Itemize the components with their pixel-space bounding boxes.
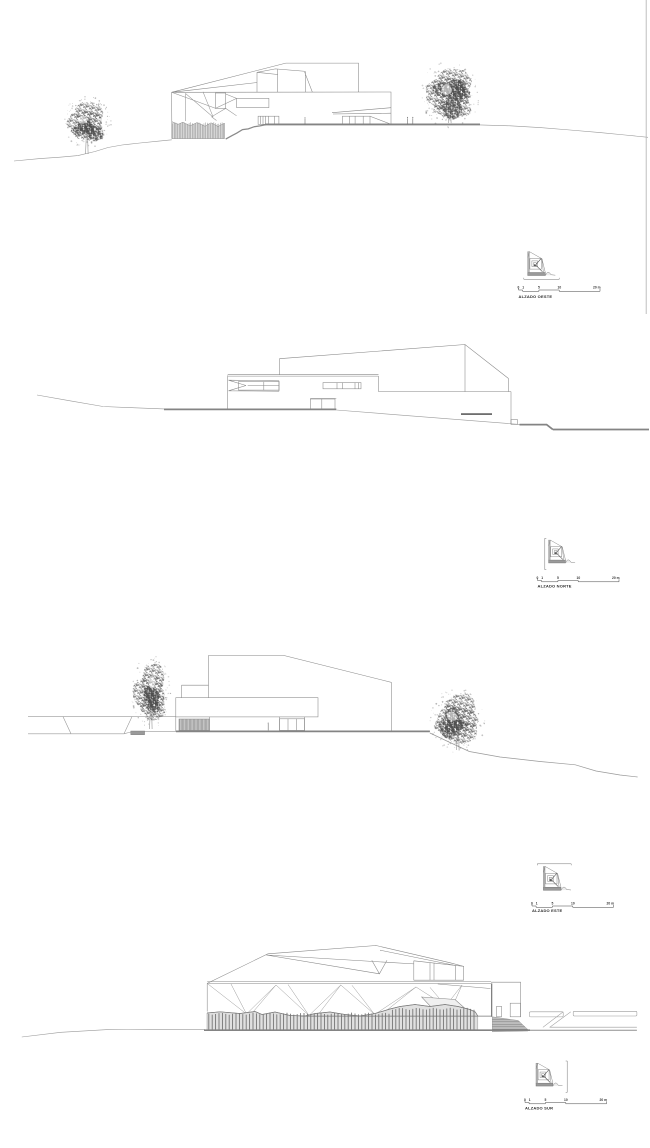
- svg-text:5: 5: [545, 1098, 547, 1102]
- svg-text:1: 1: [529, 1098, 531, 1102]
- svg-text:0: 0: [531, 901, 533, 905]
- svg-text:0: 0: [524, 1098, 526, 1102]
- svg-text:ALZADO OESTE: ALZADO OESTE: [519, 294, 553, 299]
- svg-text:10: 10: [571, 901, 575, 905]
- svg-text:0: 0: [537, 576, 539, 580]
- svg-text:20 m: 20 m: [612, 576, 620, 580]
- svg-text:20 m: 20 m: [600, 1098, 608, 1102]
- svg-text:ALZADO SUR: ALZADO SUR: [525, 1105, 553, 1110]
- svg-text:1: 1: [522, 285, 524, 289]
- svg-text:5: 5: [538, 285, 540, 289]
- svg-text:20 m: 20 m: [607, 901, 615, 905]
- svg-text:10: 10: [577, 576, 581, 580]
- svg-text:1: 1: [536, 901, 538, 905]
- svg-text:20 m: 20 m: [593, 285, 601, 289]
- svg-text:0: 0: [518, 285, 520, 289]
- svg-text:10: 10: [558, 285, 562, 289]
- svg-text:ALZADO ESTE: ALZADO ESTE: [532, 908, 563, 913]
- svg-text:5: 5: [552, 901, 554, 905]
- svg-text:1: 1: [541, 576, 543, 580]
- svg-text:5: 5: [557, 576, 559, 580]
- svg-text:ALZADO NORTE: ALZADO NORTE: [538, 583, 572, 588]
- svg-text:10: 10: [564, 1098, 568, 1102]
